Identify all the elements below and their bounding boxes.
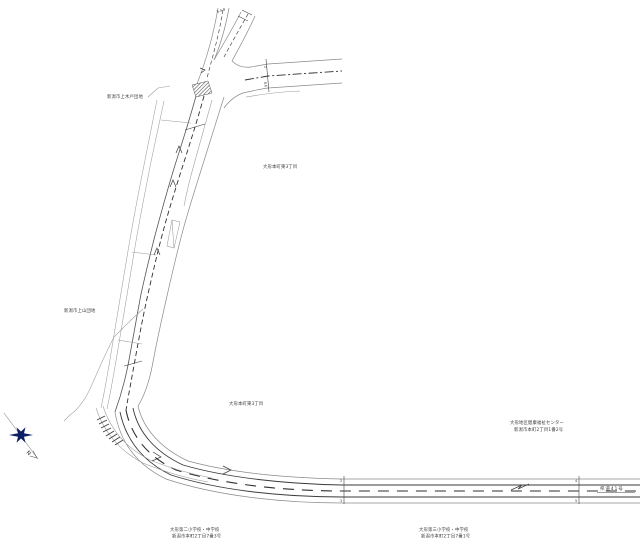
compass: N xyxy=(4,413,38,459)
top-road-centerline xyxy=(245,71,342,80)
driveway-connector-3 xyxy=(118,340,142,344)
school-right-name-label: 大形第三小学校・中学校 xyxy=(419,526,469,533)
parcel-corner-top xyxy=(148,86,170,97)
plan-drawing: N 8-4-9 新潟市上木戸団地 大形本町東3丁目 新潟市上山団地 大形本町東3… xyxy=(0,0,640,552)
school-right-address-label: 新潟市本町2丁目7番1号 xyxy=(421,533,470,540)
bottom-road-inner-lane-line xyxy=(133,408,640,485)
district-label-left: 新潟市上山団地 xyxy=(64,307,96,314)
branch-end-tick-2 xyxy=(242,10,252,15)
crosswalk-top-hatch xyxy=(192,81,212,97)
main-road-tick-2 xyxy=(124,361,142,366)
main-road-tick-1 xyxy=(185,124,205,130)
lane-arrow-up-2 xyxy=(170,180,176,187)
station-label-bottom-left-lower: 3 xyxy=(340,499,342,503)
pavement-markings xyxy=(124,59,635,504)
district-label-right-lower: 大形本町東3丁目 xyxy=(229,400,263,407)
parcel-label-top: 8-4-9 xyxy=(216,7,226,14)
bus-bay-outline xyxy=(167,220,180,248)
driveway-connector-2 xyxy=(132,252,156,255)
north-stub-west-edge xyxy=(197,8,218,84)
north-stub-centerline xyxy=(207,10,223,78)
facility-name-label: 大形地区健康福祉センター xyxy=(510,419,564,426)
school-left-address-label: 新潟市本町2丁目7番3号 xyxy=(172,533,221,540)
main-road-centerline xyxy=(126,96,204,410)
branch-centerline xyxy=(224,14,248,57)
sidewalk-and-parcels xyxy=(64,86,212,421)
driveway-connector-1 xyxy=(161,120,191,123)
bottom-road-inner-edge xyxy=(138,406,640,479)
intersection-arrow xyxy=(200,68,205,73)
district-label-upper-left: 新潟市上木戸団地 xyxy=(107,93,143,100)
north-star-icon xyxy=(9,427,33,443)
intersection-se-fillet xyxy=(224,93,243,108)
plan-drawing-canvas: N 8-4-9 新潟市上木戸団地 大形本町東3丁目 新潟市上山団地 大形本町東3… xyxy=(0,0,640,552)
station-label-top-lower: 8.6 xyxy=(263,81,268,87)
district-label-right-upper: 大形本町東3丁目 xyxy=(263,163,297,170)
crosswalks xyxy=(97,81,212,445)
facility-address-label: 新潟市本町2丁目1番2号 xyxy=(514,426,563,433)
intersection-ne-fillet xyxy=(232,61,251,67)
north-stub-east-edge xyxy=(214,8,229,60)
school-left-name-label: 大形第二小学校・中学校 xyxy=(170,526,220,533)
route-number-label: 県道41号 xyxy=(600,485,624,492)
lane-arrow-right-1 xyxy=(152,452,161,461)
terrain-line xyxy=(64,309,143,421)
station-label-bottom-right-lower: 5 xyxy=(575,499,577,503)
top-road-curb-line xyxy=(246,91,300,97)
main-road-west-edge xyxy=(115,96,196,412)
station-label-bottom-right-upper: 4 xyxy=(575,479,577,483)
station-label-bottom-left-upper: 2 xyxy=(340,479,342,483)
